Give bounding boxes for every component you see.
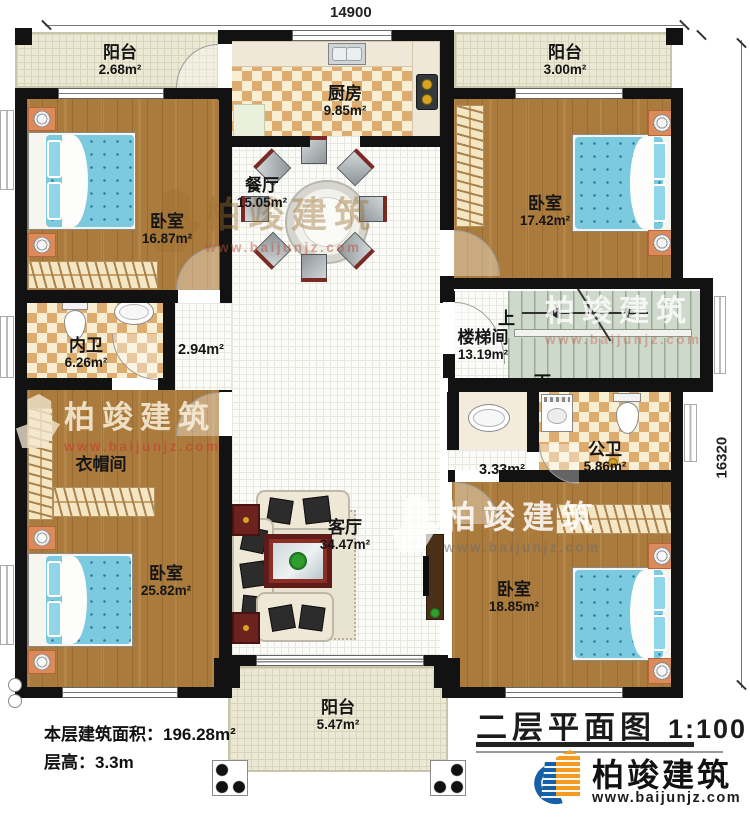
wall-pier <box>434 658 460 688</box>
room-label-kitchen: 厨房 9.85m² <box>295 84 395 118</box>
stair-up-label: 上 <box>498 304 515 329</box>
armchair <box>256 592 334 642</box>
sofa-cushion <box>268 604 296 632</box>
area-label-hall-center: 2.94m² <box>151 342 251 358</box>
plant-icon <box>430 608 440 618</box>
door-opening <box>219 392 232 436</box>
room-name: 阳台 <box>70 43 170 62</box>
bed-pillow <box>652 615 667 651</box>
room-name: 客厅 <box>295 518 395 537</box>
room-area: 3.00m² <box>515 62 615 77</box>
logo-building-icon <box>556 750 580 798</box>
dimension-height: 16320 <box>714 419 731 479</box>
room-label-living: 客厅 34.47m² <box>295 518 395 552</box>
wall-corner-post <box>15 28 32 45</box>
page-title: 二层平面图 <box>476 710 656 745</box>
stair-arrow-left <box>548 307 559 319</box>
room-name: 阳台 <box>515 43 615 62</box>
room-label-balcony-bottom: 阳台 5.47m² <box>288 698 388 732</box>
bed-sheet <box>630 137 654 229</box>
bay-window <box>684 404 697 462</box>
dimension-line-right <box>741 40 742 688</box>
wall <box>527 392 539 452</box>
scale-label: 1:100 <box>668 714 747 744</box>
dimension-line-top <box>45 25 685 26</box>
room-area: 25.82m² <box>116 583 216 598</box>
bed-pillow <box>652 184 667 222</box>
bed-pillow <box>47 182 62 220</box>
room-area: 9.85m² <box>295 103 395 118</box>
room-label-dining: 餐厅 15.05m² <box>212 176 312 210</box>
title-block: 二层平面图1:100 <box>476 702 747 747</box>
nightstand <box>28 233 56 257</box>
logo-url-text: www.baijunjz.com <box>592 790 741 806</box>
room-name: 楼梯间 <box>433 328 533 347</box>
room-area: 17.42m² <box>495 213 595 228</box>
wall <box>448 278 713 289</box>
column-marker <box>430 760 466 796</box>
room-name: 卧室 <box>495 194 595 213</box>
room-area: 16.87m² <box>117 231 217 246</box>
room-label-balcony-top-left: 阳台 2.68m² <box>70 43 170 77</box>
bed-pillow <box>47 561 62 597</box>
wall <box>447 392 459 450</box>
wardrobe <box>28 261 158 289</box>
room-label-cloakroom: 衣帽间 <box>51 455 151 474</box>
room-area: 2.68m² <box>70 62 170 77</box>
floor-area-text: 本层建筑面积：196.28m² <box>44 720 236 745</box>
room-label-balcony-top-right: 阳台 3.00m² <box>515 43 615 77</box>
room-name: 衣帽间 <box>51 455 151 474</box>
wardrobe <box>53 487 155 517</box>
room-area: 15.05m² <box>212 195 312 210</box>
sliding-door <box>256 655 424 666</box>
bay-window <box>0 565 14 645</box>
bay-window <box>0 110 14 190</box>
stair-treads-upper <box>508 291 700 329</box>
bed-pillow <box>47 140 62 178</box>
side-table <box>232 504 260 536</box>
wall <box>671 88 683 278</box>
floor-height-text: 层高：3.3m <box>44 748 134 773</box>
room-label-stairwell: 楼梯间 13.19m² <box>433 328 533 362</box>
side-table <box>232 612 260 644</box>
wall <box>671 392 683 482</box>
bed-sheet <box>630 570 654 658</box>
nightstand <box>28 650 56 674</box>
dining-chair <box>359 196 385 222</box>
room-area: 6.26m² <box>36 355 136 370</box>
room-area: 5.47m² <box>288 717 388 732</box>
wardrobe <box>556 504 676 534</box>
door-opening <box>218 44 232 88</box>
room-name: 卧室 <box>464 580 564 599</box>
bed-pillow <box>652 142 667 180</box>
wall <box>700 278 713 392</box>
bay-window <box>714 296 726 374</box>
column-marker <box>8 678 22 692</box>
door-opening <box>178 290 220 303</box>
room-label-bedroom-bottom-right: 卧室 18.85m² <box>464 580 564 614</box>
room-name: 厨房 <box>295 84 395 103</box>
washing-machine <box>541 394 573 432</box>
room-name: 内卫 <box>36 336 136 355</box>
column-marker <box>212 760 248 796</box>
window <box>62 687 178 698</box>
room-label-bedroom-top-left: 卧室 16.87m² <box>117 212 217 246</box>
floor-plan: 阳台 2.68m² 厨房 9.85m² 阳台 3.00m² 卧室 16.87m²… <box>0 0 750 818</box>
wall <box>15 88 27 698</box>
bed-pillow <box>652 575 667 611</box>
dimension-tick <box>696 30 707 41</box>
wall <box>671 480 683 698</box>
wall-stub <box>222 136 310 147</box>
room-name: 卧室 <box>116 564 216 583</box>
room-area: 13.19m² <box>433 347 533 362</box>
room-area: 18.85m² <box>464 599 564 614</box>
window <box>505 687 623 698</box>
fridge <box>233 104 265 137</box>
wall <box>448 378 713 392</box>
window <box>58 88 164 99</box>
room-label-bedroom-top-right: 卧室 17.42m² <box>495 194 595 228</box>
wall-stub <box>360 136 454 147</box>
room-name: 卧室 <box>117 212 217 231</box>
sofa-cushion <box>298 604 325 631</box>
stove <box>416 74 438 110</box>
room-label-bedroom-bottom-left: 卧室 25.82m² <box>116 564 216 598</box>
company-logo: 柏竣建筑 www.baijunjz.com <box>534 750 748 812</box>
bed-pillow <box>47 601 62 637</box>
room-name: 餐厅 <box>212 176 312 195</box>
wall-corner-post <box>666 28 683 45</box>
wardrobe <box>456 105 484 227</box>
stair-down-label: 下 <box>534 368 551 393</box>
room-name: 阳台 <box>288 698 388 717</box>
stair-arrow-right <box>626 307 637 319</box>
door-opening <box>440 230 454 276</box>
room-label-bath-public: 公卫 5.86m² <box>555 440 655 474</box>
nightstand <box>28 526 56 550</box>
tv-icon <box>423 556 429 596</box>
toilet-icon <box>613 393 641 402</box>
dimension-width: 14900 <box>330 4 372 21</box>
window <box>515 88 623 99</box>
title-underline-thick <box>476 742 694 747</box>
bay-window <box>0 316 14 378</box>
room-label-bath-inner: 内卫 6.26m² <box>36 336 136 370</box>
sink-icon <box>468 404 510 432</box>
window <box>292 30 392 41</box>
area-label-hall-small: 3.33m² <box>452 462 552 478</box>
door-opening <box>112 378 158 390</box>
dining-chair <box>301 254 327 280</box>
nightstand <box>28 107 56 131</box>
column-marker <box>8 694 22 708</box>
room-area: 34.47m² <box>295 537 395 552</box>
kitchen-sink <box>328 43 366 65</box>
plant-icon <box>289 552 307 570</box>
room-area: 5.86m² <box>555 459 655 474</box>
room-name: 公卫 <box>555 440 655 459</box>
